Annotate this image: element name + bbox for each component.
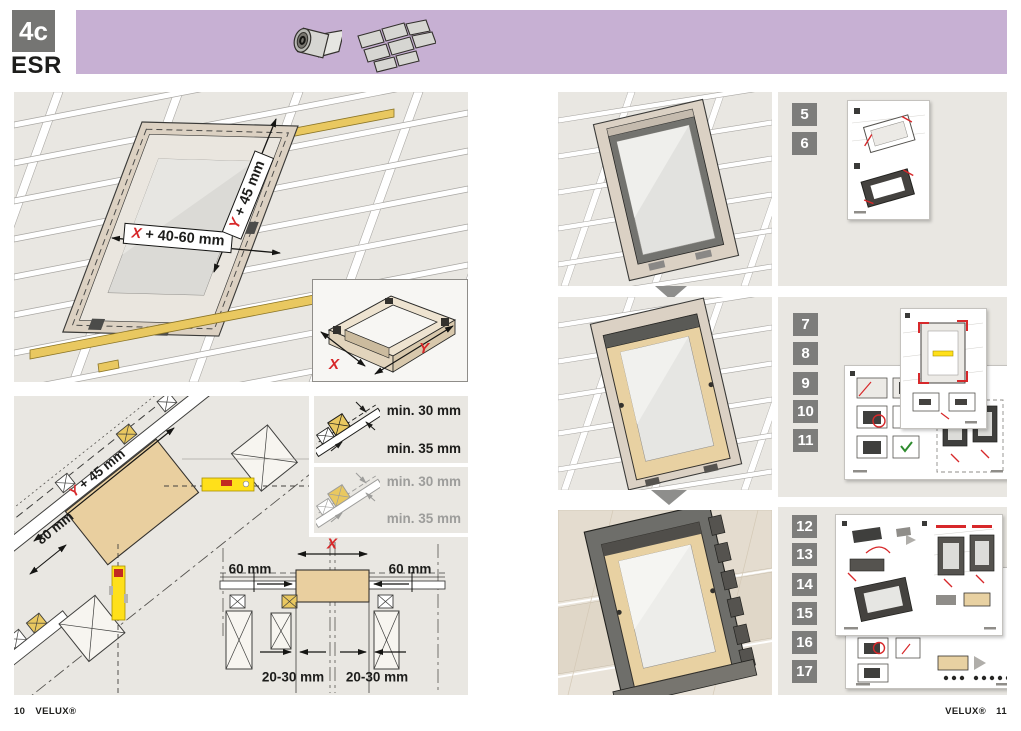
page-number-right: 11 [996, 706, 1007, 717]
step-badge: 10 [793, 400, 818, 423]
step-badge: 5 [792, 103, 817, 126]
batten-clearance-diagram-muted [316, 470, 380, 530]
batten-clearance-box-alt: min. 30 mm min. 35 mm [314, 467, 468, 534]
illustration-sash-installed [558, 297, 772, 490]
batten-detail-boxes: min. 30 mm min. 35 mm [309, 396, 468, 537]
product-code: ESR [11, 52, 62, 80]
gap-left-label: 60 mm [229, 562, 272, 577]
instruction-page-thumbnail [900, 308, 987, 429]
frame-size-inset: X Y [312, 279, 468, 382]
min-batten-width-label-muted: min. 35 mm [387, 511, 461, 526]
step-badge: 16 [792, 631, 817, 654]
flashing-installed-drawing [558, 510, 772, 695]
page-footer-right: VELUX® 11 [945, 706, 1007, 717]
steps-12-17-panel: 12 13 14 15 16 17 [778, 507, 1007, 695]
width-letter-label: X [327, 536, 337, 553]
illustration-flashing-installed [558, 510, 772, 695]
step-badge: 9 [793, 372, 818, 395]
steps-7-11-panel: 7 8 9 10 11 [778, 297, 1007, 497]
inset-depth-letter: Y [419, 340, 429, 357]
framing-dimensions-panel: X+ 40-60 mm Y+ 45 mm [14, 92, 468, 382]
batten-clearance-diagram [316, 399, 380, 459]
step-badge: 14 [792, 573, 817, 596]
step-badge: 13 [792, 543, 817, 566]
page-footer-left: 10 VELUX® [14, 706, 76, 717]
instruction-page-thumbnail [847, 100, 930, 220]
min-batten-height-label: min. 30 mm [387, 403, 461, 418]
step-badge: 12 [792, 515, 817, 538]
instruction-page-thumbnail [835, 514, 1003, 636]
velux-manual-spread: 4c ESR [0, 0, 1021, 731]
step-badge: 11 [793, 429, 818, 452]
step-badge: 7 [793, 313, 818, 336]
step-badge: 15 [792, 602, 817, 625]
frame-mounted-drawing [558, 92, 772, 286]
next-step-arrow [651, 490, 687, 505]
step-badge: 6 [792, 132, 817, 155]
materials-banner [76, 10, 1007, 74]
sash-installed-drawing [558, 297, 772, 490]
gap-right-label: 60 mm [389, 562, 432, 577]
illustration-frame-mounted [558, 92, 772, 286]
brand-left: VELUX® [35, 706, 76, 717]
step-badge: 8 [793, 342, 818, 365]
shingles-icon [348, 18, 436, 76]
section-code-box: 4c [12, 10, 55, 52]
steps-5-6-panel: 5 6 [778, 92, 1007, 286]
min-batten-height-label-muted: min. 30 mm [387, 474, 461, 489]
page-number-left: 10 [14, 706, 25, 717]
batten-clearance-box: min. 30 mm min. 35 mm [314, 396, 468, 463]
section-code: 4c [19, 16, 48, 47]
tolerance-left-label: 20-30 mm [262, 670, 324, 685]
brand-right: VELUX® [945, 706, 986, 717]
step-badge: 17 [792, 660, 817, 683]
roof-underlay-roll-icon [292, 18, 342, 70]
inset-width-letter: X [329, 356, 339, 373]
cross-section-panel: Y + 45 mm 80 mm 60 mm 60 mm X 20-30 mm 2… [14, 396, 468, 695]
tolerance-right-label: 20-30 mm [346, 670, 408, 685]
min-batten-width-label: min. 35 mm [387, 441, 461, 456]
